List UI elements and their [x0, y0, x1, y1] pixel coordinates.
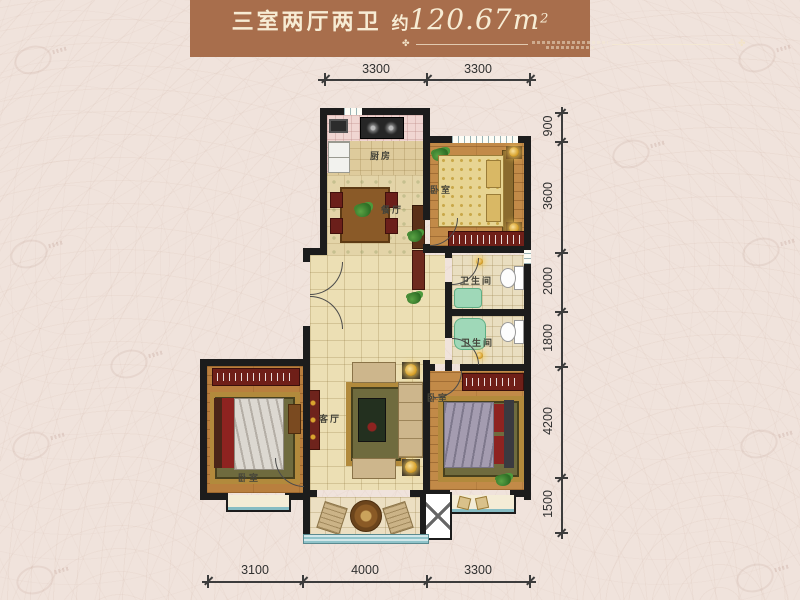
bed-headboard-icon: [214, 398, 222, 468]
wall: [445, 309, 531, 316]
title-row: 三室两厅两卫 约120.67m2: [190, 3, 590, 36]
lamp-icon: [405, 461, 417, 473]
dim-label-top-2: 3300: [453, 62, 503, 76]
bay-window-icon: [226, 495, 291, 512]
lamp-icon: [509, 147, 519, 157]
microwave-icon: [329, 119, 348, 133]
sofa-icon: [398, 382, 423, 458]
shaft-icon: [424, 492, 452, 540]
dim-label-bottom-1: 3100: [230, 563, 280, 577]
bed-bottom-right-icon: [444, 402, 494, 468]
window-icon: [524, 250, 531, 264]
room-label-bathroom-lower: 卫生间: [461, 336, 494, 349]
banner-fine-print: [532, 41, 608, 44]
sink-cabinet-icon: [328, 141, 350, 173]
banner-ornament-icon: ✤: [402, 38, 410, 49]
dim-label-right-6: 1500: [541, 482, 555, 526]
window-icon: [344, 108, 362, 115]
dining-chair-icon: [330, 192, 343, 208]
wall: [200, 359, 310, 366]
vanity-sink-icon: [454, 288, 482, 308]
title-banner: 三室两厅两卫 约120.67m2 ✤ ✤: [190, 0, 590, 57]
wall: [445, 282, 452, 338]
watermark-logo: [609, 135, 653, 172]
armchair-icon: [352, 458, 396, 479]
hanger-marks: [217, 373, 294, 382]
wall: [303, 252, 310, 262]
pillow-icon: [222, 398, 234, 468]
armchair-icon: [352, 362, 396, 383]
wall: [423, 108, 430, 220]
dining-chair-icon: [330, 218, 343, 234]
room-label-kitchen: 厨房: [370, 149, 392, 162]
wall: [320, 108, 327, 255]
dim-label-right-2: 3600: [541, 174, 555, 218]
dining-chair-icon: [385, 218, 398, 234]
floorplan-page: 三室两厅两卫 约120.67m2 ✤ ✤: [0, 0, 800, 600]
watermark-logo: [107, 345, 151, 382]
bench-icon: [288, 404, 301, 434]
hanger-marks: [453, 235, 521, 243]
watermark-logo: [9, 427, 53, 464]
banner-divider: [416, 44, 528, 45]
banner-divider: [612, 44, 734, 45]
layout-title: 三室两厅两卫: [232, 4, 382, 36]
pillow-icon: [486, 194, 501, 222]
watermark-logo: [737, 425, 781, 462]
dim-label-right-1: 900: [541, 104, 555, 148]
banner-fine-print: [546, 46, 596, 49]
dimension-line-bottom: [202, 581, 536, 583]
wall: [200, 359, 207, 500]
stove-icon: [360, 117, 404, 139]
dim-label-right-5: 4200: [541, 399, 555, 443]
hall-cabinet-icon: [412, 250, 425, 290]
watermark-logo: [733, 559, 777, 596]
wardrobe-icon: [462, 373, 524, 391]
dim-label-right-3: 2000: [541, 259, 555, 303]
window-icon: [452, 136, 518, 143]
wall: [524, 136, 531, 500]
balcony-table-icon: [350, 500, 382, 532]
wall: [320, 108, 430, 115]
room-label-bedroom-bottom-left: 卧室: [238, 471, 260, 484]
room-label-bathroom-upper: 卫生间: [460, 274, 493, 287]
area-text: 约120.67m2: [392, 3, 549, 36]
coffee-table-icon: [358, 398, 386, 442]
toilet-icon: [500, 268, 516, 288]
room-label-living: 客厅: [319, 412, 341, 425]
wall: [445, 248, 452, 258]
hanger-marks: [466, 378, 520, 387]
room-label-bedroom-bottom-right: 卧室: [427, 391, 449, 404]
watermark-logo: [11, 41, 55, 78]
wall: [445, 360, 452, 371]
watermark-logo: [7, 235, 51, 272]
lamp-icon: [405, 364, 417, 376]
banner-ornament-icon: ✤: [738, 38, 746, 49]
wall: [460, 364, 531, 371]
cushion-icon: [475, 496, 489, 510]
dim-label-bottom-3: 3300: [453, 563, 503, 577]
bed-headboard-icon: [504, 400, 514, 468]
toilet-icon: [500, 322, 516, 342]
watermark-logo: [739, 233, 783, 270]
room-label-dining: 餐厅: [381, 203, 403, 216]
wall: [423, 360, 430, 500]
watermark-logo: [13, 561, 57, 598]
balcony-railing-icon: [303, 534, 429, 544]
wall: [303, 359, 310, 500]
dim-label-right-4: 1800: [541, 316, 555, 360]
dim-label-top-1: 3300: [351, 62, 401, 76]
wall: [423, 244, 430, 253]
room-label-bedroom-top-right: 卧室: [430, 183, 452, 196]
pillow-icon: [486, 160, 501, 188]
wardrobe-icon: [212, 368, 300, 386]
dim-label-bottom-2: 4000: [340, 563, 390, 577]
